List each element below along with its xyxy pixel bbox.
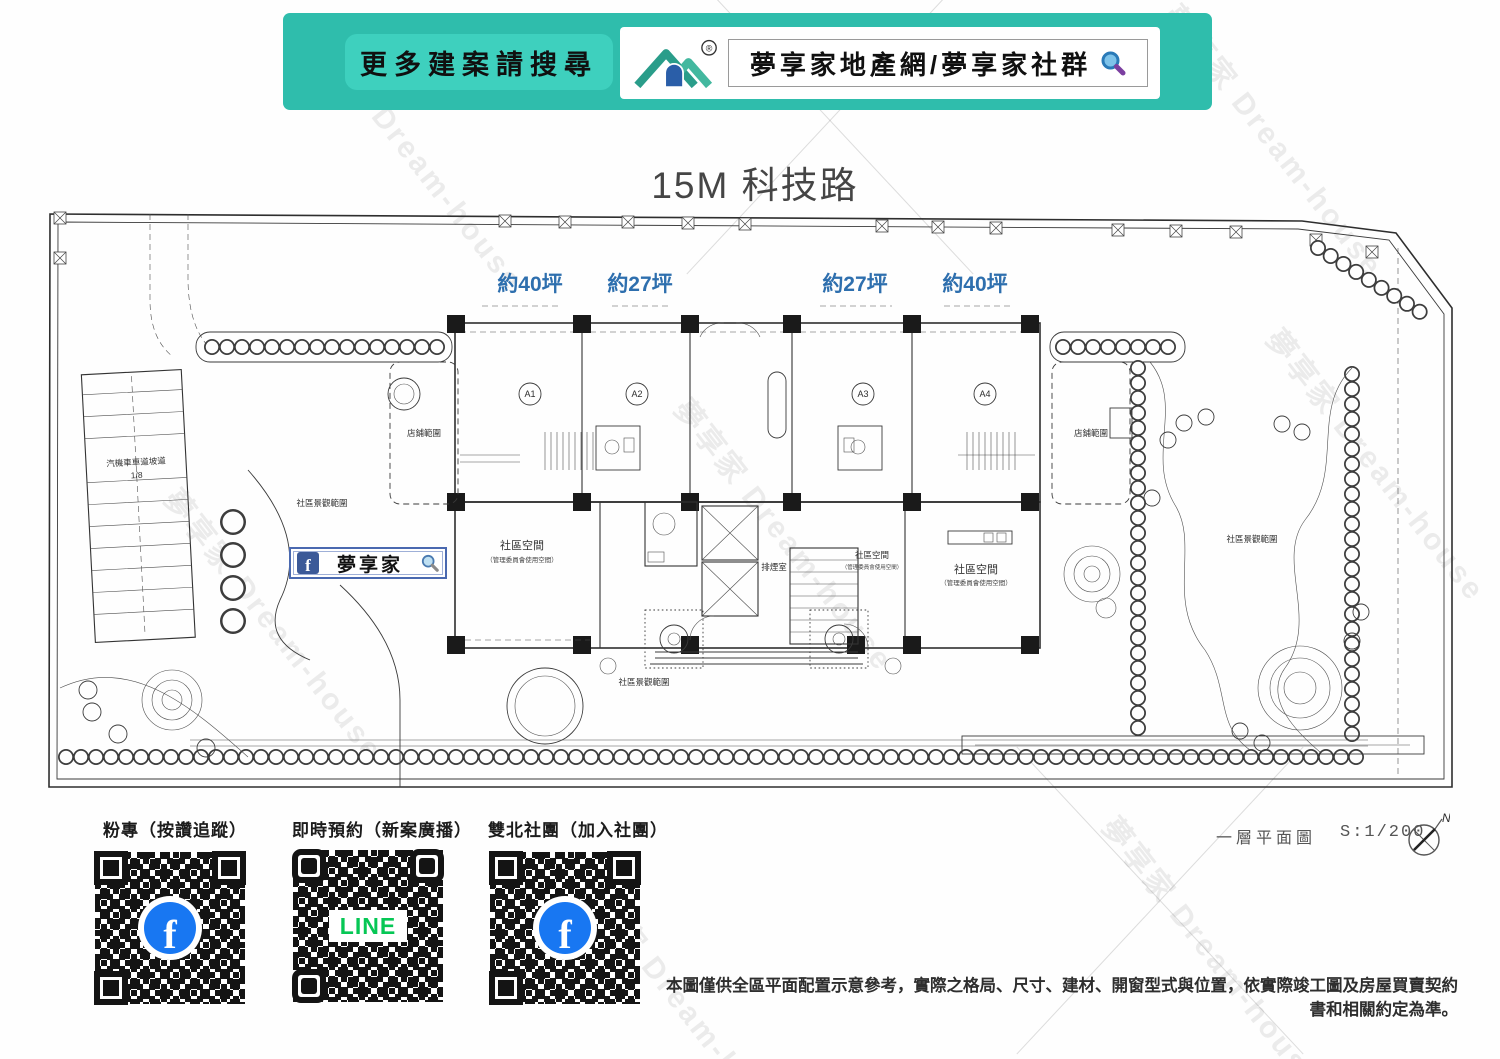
svg-text:（管理委員會使用空間）: （管理委員會使用空間） [842,563,903,571]
qr-title-booking: 即時預約（新案廣播） [292,816,472,841]
floor-plan-drawing: 汽機車車道坡道 1/8 [30,195,1470,807]
disclaimer-text: 本圖僅供全區平面配置示意參考，實際之格局、尺寸、建材、開窗型式與位置，依實際竣工… [658,972,1458,1020]
compass-north-label: N [1442,811,1450,825]
smoke-room-label: 排煙室 [761,562,787,572]
svg-text:（管理委員會使用空間）: （管理委員會使用空間） [486,555,558,564]
ramp-slope: 1/8 [131,470,144,481]
qr-title-community: 雙北社團（加入社團） [488,816,668,841]
brand-search-text: 夢享家地產網/夢享家社群 [750,45,1091,82]
qr-finder [292,849,326,883]
ramp-label: 汽機車車道坡道 [106,455,166,468]
unit-a2: A2 [631,389,642,399]
qr-finder [94,971,128,1005]
svg-text:店鋪範圍: 店鋪範圍 [1074,428,1108,438]
landscape-label-bottom: 社區景觀範圍 [618,677,669,687]
qr-finder [212,851,246,885]
qr-code-line[interactable]: LINE [293,850,443,1002]
qr-code-facebook-fanpage[interactable]: f [95,852,245,1004]
area-label-a3: 約27坪 [822,272,887,296]
line-logo: LINE [329,910,407,942]
building-columns [447,315,1039,654]
facebook-search-label: 夢享家 [325,550,415,577]
facebook-logo: f [144,902,196,954]
qr-title-fanpage: 粉專（按讚追蹤） [103,816,247,841]
unit-a3: A3 [857,389,868,399]
facebook-icon: f [297,552,319,574]
qr-finder [292,969,326,1003]
building-outline [455,323,1040,648]
shop-right: 店鋪範圍 [1052,362,1132,504]
driveway-ramp: 汽機車車道坡道 1/8 [81,370,195,643]
qr-code-facebook-group[interactable]: f [490,852,640,1004]
registered-mark: ® [706,43,713,53]
community-space-right: 社區空間 （管理委員會使用空間） [940,531,1012,587]
brand-logo-icon: ® [632,31,718,95]
brand-box: ® 夢享家地產網/夢享家社群 [620,27,1160,99]
qr-finder [489,851,523,885]
plan-name: 一層平面圖 [1216,824,1316,848]
area-label-a2: 約27坪 [607,272,672,296]
svg-text:社區空間: 社區空間 [855,550,889,560]
shop-left: 店鋪範圍 [390,362,458,504]
landscape-label-right: 社區景觀範圍 [1226,534,1277,544]
svg-text:店鋪範圍: 店鋪範圍 [407,428,441,438]
unit-interiors [460,426,1035,470]
unit-id-labels: A1 A2 A3 A4 [519,383,996,405]
facebook-search-box[interactable]: f 夢享家 [289,547,447,579]
svg-text:社區空間: 社區空間 [954,562,998,576]
search-prompt-button[interactable]: 更多建案請搜尋 [345,34,613,90]
area-label-a1: 約40坪 [497,272,562,296]
brand-search-box[interactable]: 夢享家地產網/夢享家社群 [728,39,1148,87]
magnifier-icon [421,554,439,572]
magnifier-icon [1100,50,1126,76]
qr-finder [489,971,523,1005]
unit-a1: A1 [524,389,535,399]
facebook-logo: f [539,902,591,954]
area-label-a4: 約40坪 [942,272,1007,296]
site-boundary [49,214,1452,787]
svg-text:（管理委員會使用空間）: （管理委員會使用空間） [940,578,1012,587]
qr-finder [607,851,641,885]
qr-finder [94,851,128,885]
brand-banner: 更多建案請搜尋 ® 夢享家地產網/夢享家社群 [283,13,1212,110]
community-space-left: 社區空間 （管理委員會使用空間） [465,538,590,640]
landscape-label-left: 社區景觀範圍 [296,498,347,508]
svg-text:社區空間: 社區空間 [500,538,544,552]
unit-area-labels: 約40坪 約27坪 約27坪 約40坪 [482,272,1010,306]
qr-finder [410,849,444,883]
compass-icon: N [1404,810,1450,860]
flyer-page: 夢享家 Dream-house 夢享家 Dream-house 夢享家 Drea… [0,0,1500,1059]
floor-plan: 汽機車車道坡道 1/8 [30,195,1470,807]
community-space-core: 社區空間 （管理委員會使用空間） [842,550,903,571]
unit-a4: A4 [979,389,990,399]
